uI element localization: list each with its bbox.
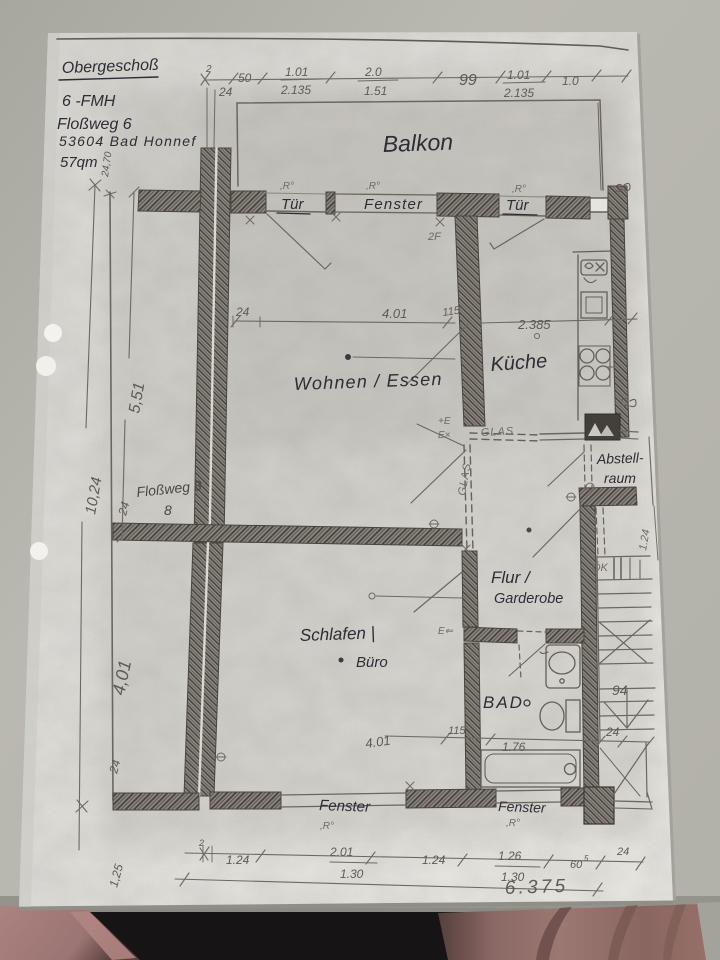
svg-text:4.01: 4.01 xyxy=(382,306,407,321)
svg-text:115: 115 xyxy=(448,725,466,737)
svg-text:24: 24 xyxy=(235,305,250,319)
svg-text:,R°: ,R° xyxy=(506,818,520,829)
svg-text:Abstell-: Abstell- xyxy=(596,449,645,467)
svg-text:1.30: 1.30 xyxy=(340,867,364,881)
svg-text:Fenster: Fenster xyxy=(498,798,547,816)
svg-text:Garderobe: Garderobe xyxy=(494,591,563,607)
svg-text:raum: raum xyxy=(604,470,636,486)
svg-text:Schlafen |: Schlafen | xyxy=(299,623,375,645)
svg-text:1.01: 1.01 xyxy=(507,68,530,82)
svg-text:6 -FMH: 6 -FMH xyxy=(62,93,116,110)
svg-text:+E: +E xyxy=(438,416,451,427)
svg-text:1.76: 1.76 xyxy=(502,740,526,754)
svg-text:,R°: ,R° xyxy=(320,821,334,832)
svg-text:ÖK: ÖK xyxy=(592,562,609,574)
svg-text:1.24: 1.24 xyxy=(226,853,250,867)
svg-text:53604 Bad Honnef: 53604 Bad Honnef xyxy=(59,133,197,149)
svg-text:2.135: 2.135 xyxy=(280,83,311,97)
svg-text:E×: E× xyxy=(438,430,451,441)
svg-text:Obergeschoß: Obergeschoß xyxy=(62,57,159,77)
svg-text:Flur /: Flur / xyxy=(491,568,532,587)
svg-text:Fenster: Fenster xyxy=(364,196,423,213)
svg-text:2.01: 2.01 xyxy=(329,845,353,859)
svg-text:BAD: BAD xyxy=(483,693,524,712)
svg-text:57qm: 57qm xyxy=(60,154,98,171)
svg-text:1.01: 1.01 xyxy=(285,65,308,79)
svg-text:Tür: Tür xyxy=(506,197,530,214)
svg-text:1.0: 1.0 xyxy=(562,74,579,88)
svg-text:2.385: 2.385 xyxy=(517,317,551,332)
svg-text:115: 115 xyxy=(442,305,462,319)
svg-text:24: 24 xyxy=(616,846,629,858)
svg-text:60: 60 xyxy=(570,859,583,871)
svg-text:,R°: ,R° xyxy=(280,181,294,192)
svg-text:94: 94 xyxy=(612,682,628,698)
svg-text:8: 8 xyxy=(164,502,172,518)
svg-text:Balkon: Balkon xyxy=(382,129,453,157)
svg-text:2.135: 2.135 xyxy=(503,86,534,100)
svg-text:Küche: Küche xyxy=(490,350,548,376)
svg-text:6.375: 6.375 xyxy=(504,876,568,899)
svg-text:GLAS: GLAS xyxy=(481,425,515,439)
svg-text:99: 99 xyxy=(459,72,477,89)
svg-text:1.24: 1.24 xyxy=(422,853,446,867)
svg-text:5: 5 xyxy=(584,854,589,863)
svg-text:24: 24 xyxy=(218,85,233,99)
svg-text:Floßweg 6: Floßweg 6 xyxy=(57,116,132,133)
svg-text:Tür: Tür xyxy=(281,196,305,213)
svg-text:E⇐: E⇐ xyxy=(438,626,454,637)
svg-text:2: 2 xyxy=(205,64,212,75)
svg-text:Büro: Büro xyxy=(356,654,388,671)
svg-text:2F: 2F xyxy=(427,231,442,243)
svg-text:Fenster: Fenster xyxy=(319,797,371,816)
svg-text:1.51: 1.51 xyxy=(364,84,387,98)
svg-text:2.0: 2.0 xyxy=(364,65,382,79)
svg-text:2: 2 xyxy=(198,838,204,848)
svg-text:50: 50 xyxy=(238,71,252,85)
svg-text:,R°: ,R° xyxy=(512,184,526,195)
svg-text:24: 24 xyxy=(605,725,620,739)
svg-text:,R°: ,R° xyxy=(366,181,380,192)
svg-text:1.26: 1.26 xyxy=(498,849,522,863)
